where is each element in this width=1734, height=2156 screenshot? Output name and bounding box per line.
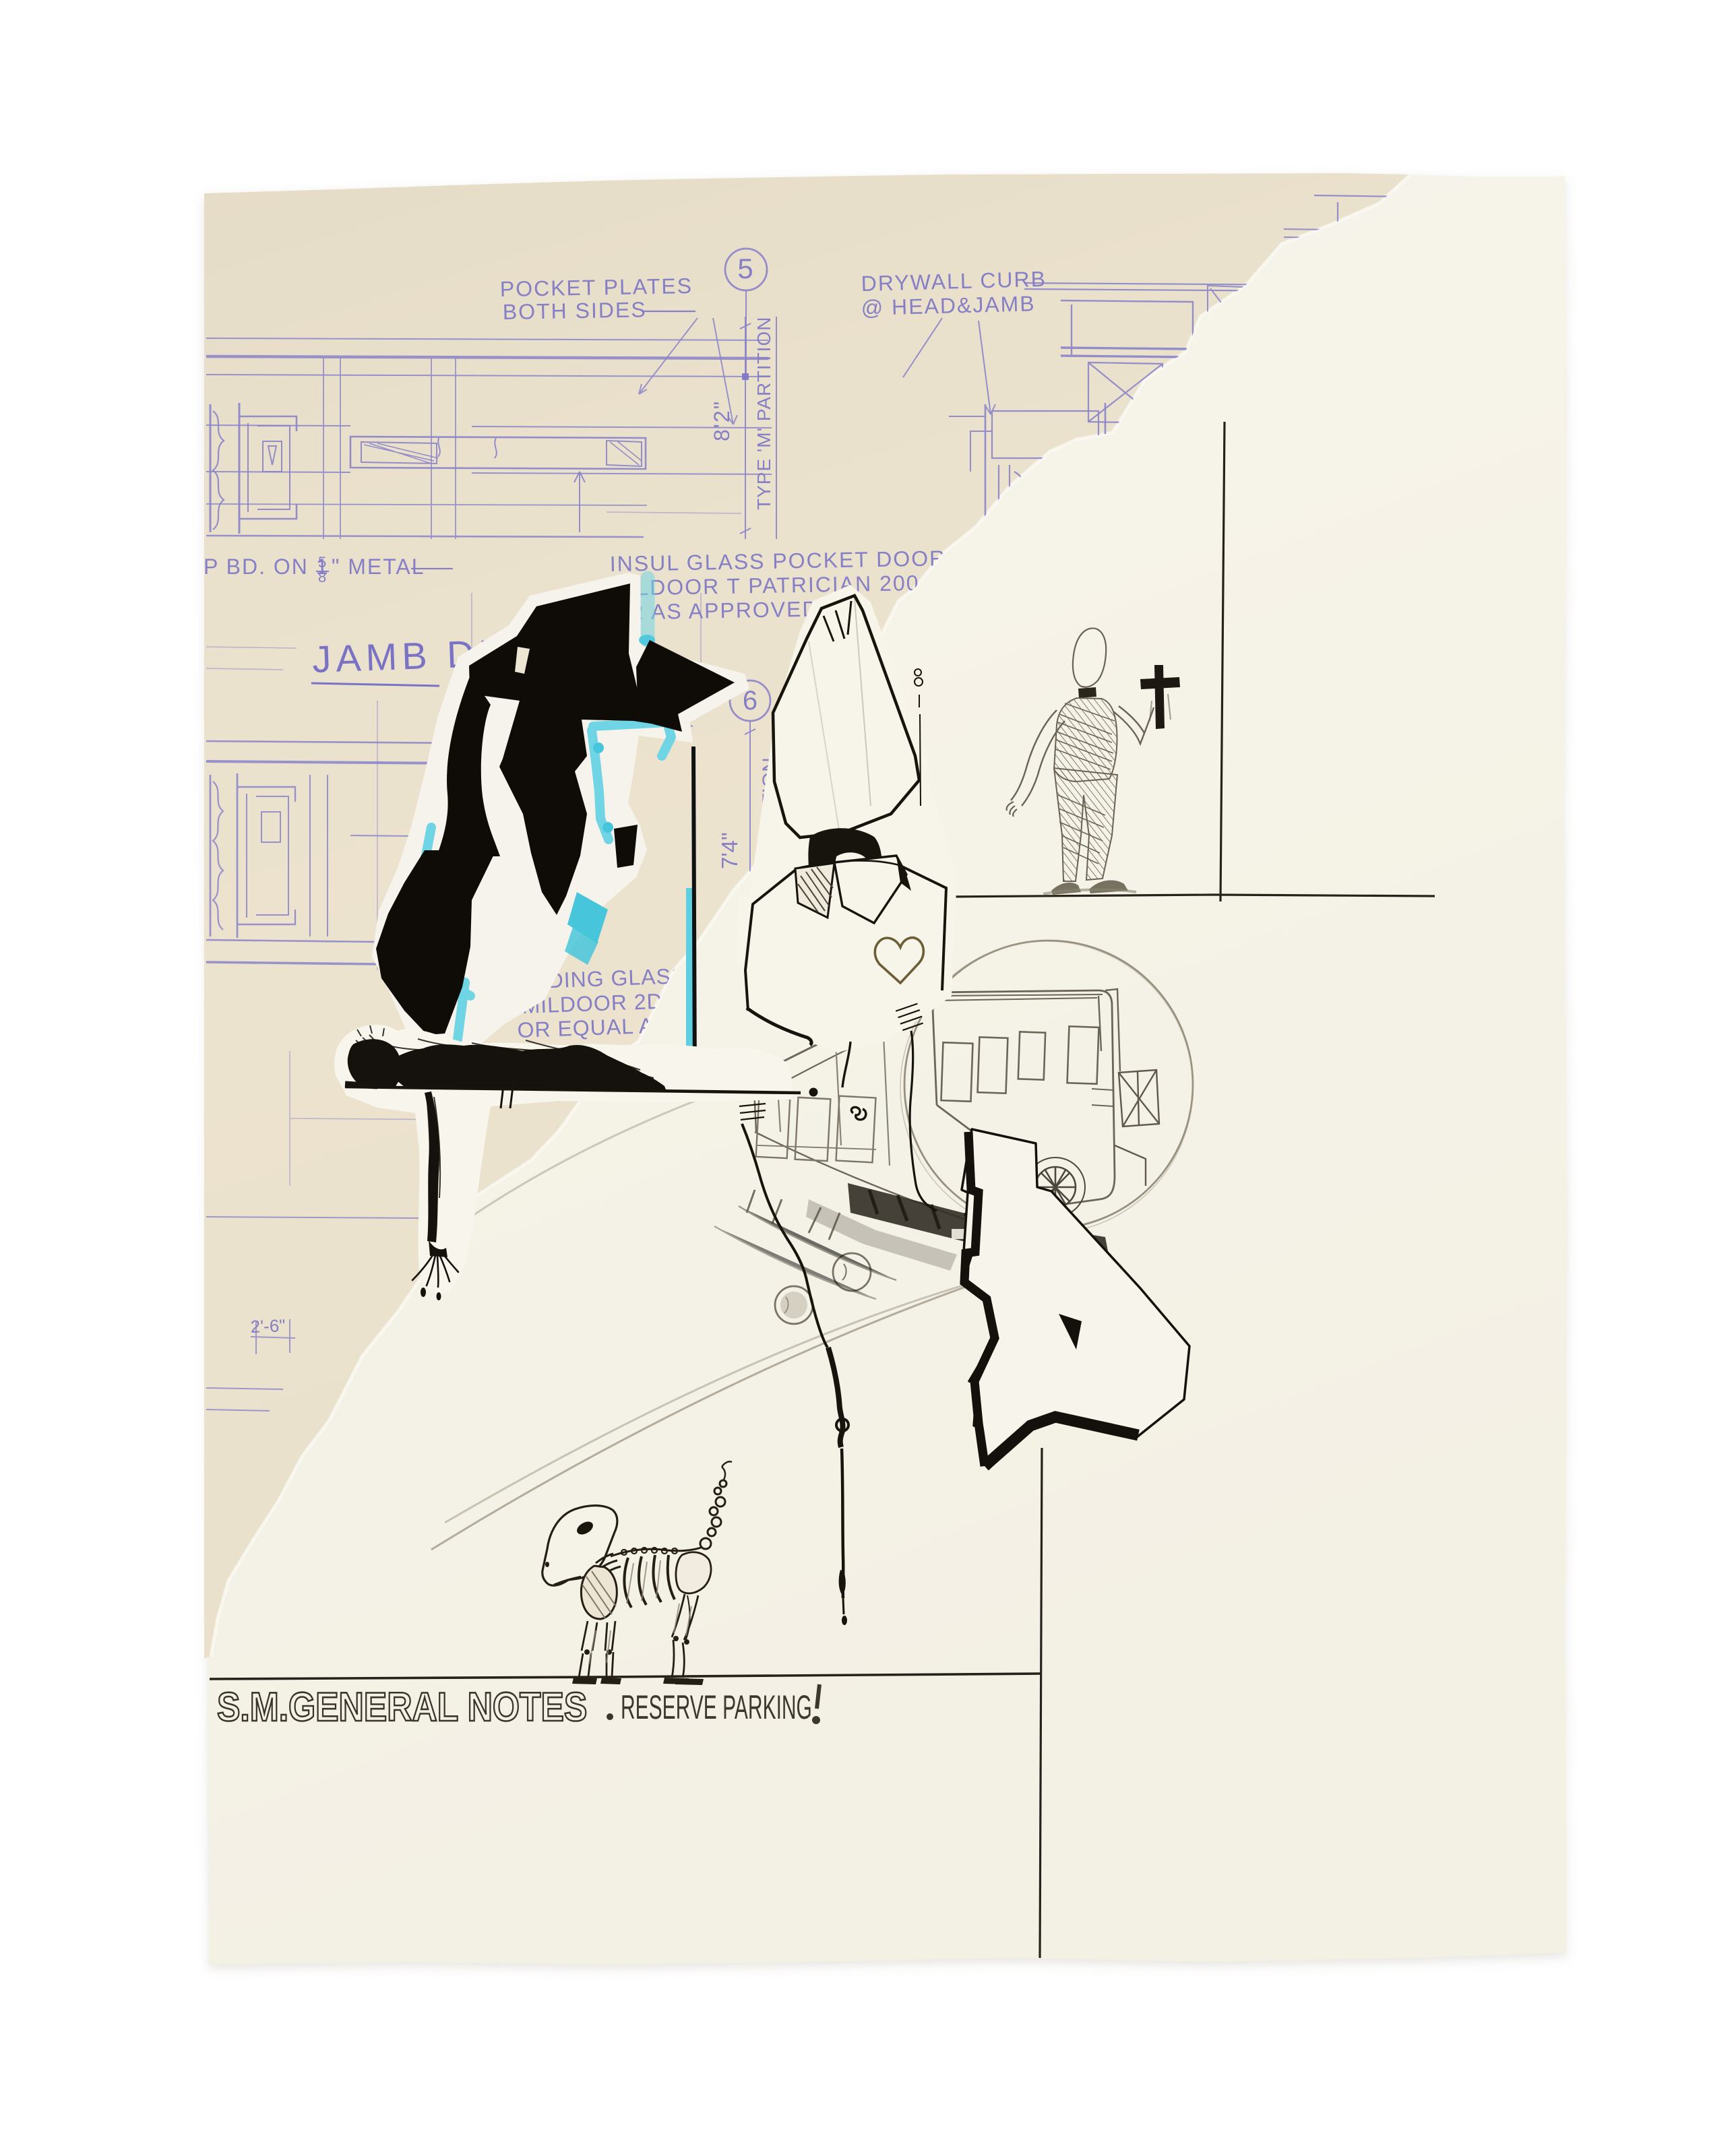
svg-text:8'2": 8'2": [710, 400, 734, 441]
svg-text:7'4": 7'4": [717, 832, 742, 869]
svg-text:5: 5: [737, 253, 754, 284]
svg-text:S.M.GENERAL NOTES: S.M.GENERAL NOTES: [217, 1684, 587, 1730]
svg-text:2'-6": 2'-6": [250, 1315, 286, 1337]
svg-text:TYPE 'M' PARTITION: TYPE 'M' PARTITION: [753, 317, 774, 510]
svg-text:" METAL: " METAL: [332, 554, 425, 579]
svg-text:P BD. ON 1: P BD. ON 1: [204, 554, 330, 579]
svg-text:RESERVE PARKING: RESERVE PARKING: [621, 1688, 812, 1726]
svg-text:BOTH SIDES: BOTH SIDES: [502, 297, 646, 324]
svg-text:POCKET PLATES: POCKET PLATES: [499, 274, 693, 301]
svg-text:@ HEAD&JAMB: @ HEAD&JAMB: [861, 291, 1036, 320]
